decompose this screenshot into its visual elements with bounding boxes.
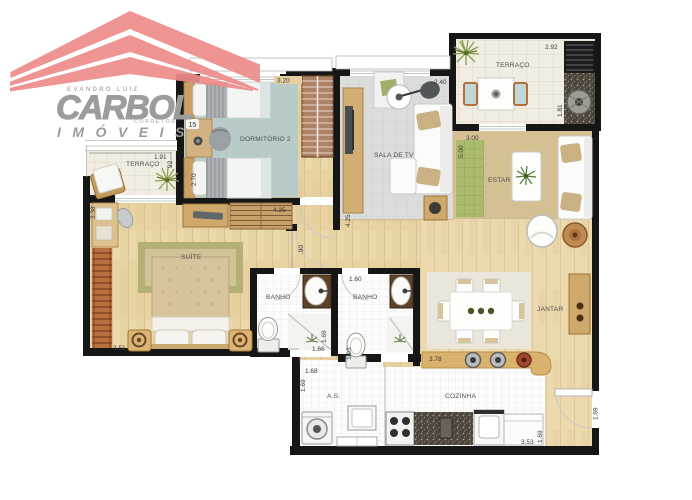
svg-text:1.69: 1.69 — [321, 330, 328, 343]
svg-text:1.91: 1.91 — [154, 154, 167, 161]
svg-text:COZINHA: COZINHA — [445, 393, 476, 400]
svg-text:A.S.: A.S. — [327, 393, 340, 400]
svg-text:BANHO: BANHO — [353, 294, 377, 301]
svg-text:3.51: 3.51 — [113, 345, 126, 352]
svg-text:DORMITÓRIO 2: DORMITÓRIO 2 — [240, 134, 291, 143]
svg-text:1.69: 1.69 — [593, 407, 600, 420]
svg-text:1.69: 1.69 — [537, 430, 544, 443]
svg-text:BANHO: BANHO — [266, 294, 290, 301]
svg-text:4.35: 4.35 — [273, 207, 286, 214]
svg-text:1.66: 1.66 — [312, 346, 325, 353]
svg-text:1.60: 1.60 — [349, 276, 362, 283]
svg-text:3.38: 3.38 — [90, 206, 97, 219]
svg-text:1.93: 1.93 — [346, 347, 353, 360]
svg-text:4.25: 4.25 — [345, 214, 352, 227]
svg-text:TERRAÇO: TERRAÇO — [126, 161, 160, 168]
svg-text:IMÓVEIS: IMÓVEIS — [57, 123, 196, 140]
svg-text:92: 92 — [167, 160, 174, 168]
svg-text:.90: .90 — [298, 245, 305, 254]
svg-text:3.53: 3.53 — [521, 439, 534, 446]
svg-text:3.00: 3.00 — [466, 135, 479, 142]
svg-text:2.40: 2.40 — [434, 79, 447, 86]
svg-text:TERRAÇO: TERRAÇO — [496, 62, 530, 69]
svg-text:5.00: 5.00 — [458, 145, 465, 158]
svg-text:2.70: 2.70 — [191, 173, 198, 186]
svg-text:2.92: 2.92 — [545, 44, 558, 51]
svg-text:3.78: 3.78 — [429, 356, 442, 363]
svg-text:1.68: 1.68 — [305, 368, 318, 375]
svg-text:1.81: 1.81 — [557, 104, 564, 117]
svg-text:1.69: 1.69 — [300, 379, 307, 392]
svg-text:SUÍTE: SUÍTE — [181, 252, 202, 261]
svg-text:ESTAR: ESTAR — [488, 177, 511, 184]
svg-text:SALA DE TV: SALA DE TV — [374, 152, 414, 159]
svg-text:JANTAR: JANTAR — [537, 306, 563, 313]
svg-text:3.20: 3.20 — [277, 78, 290, 85]
